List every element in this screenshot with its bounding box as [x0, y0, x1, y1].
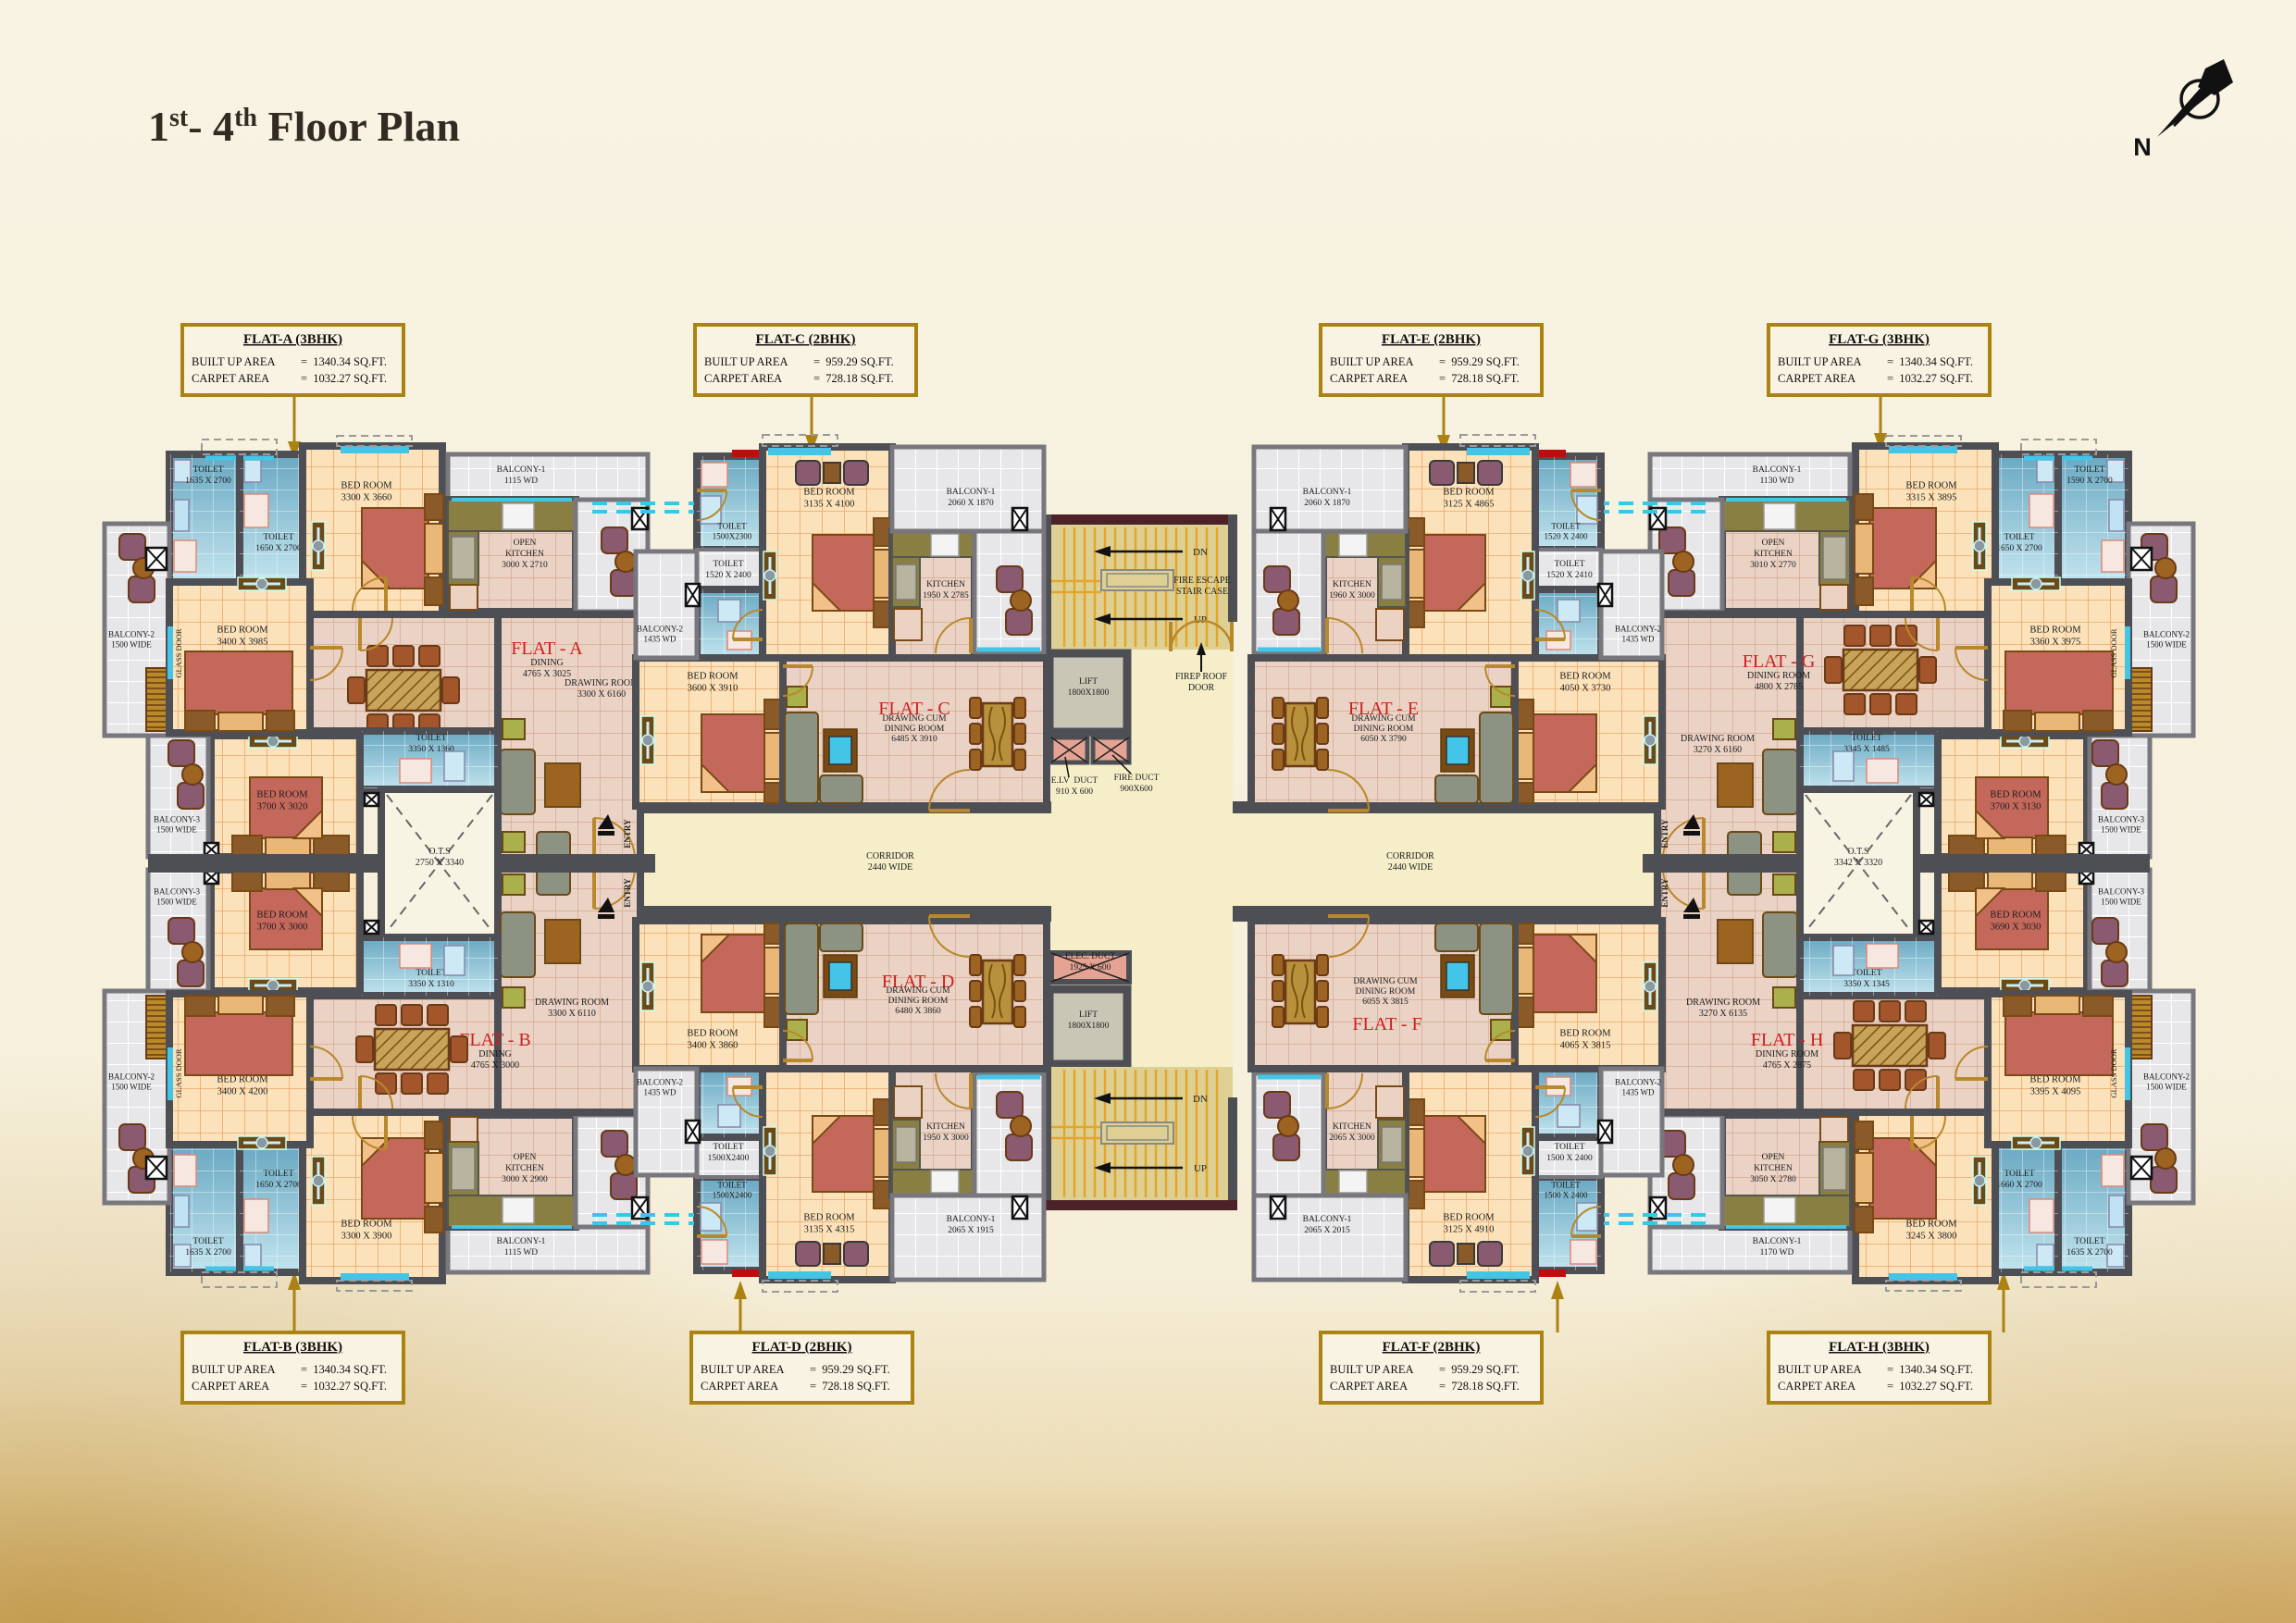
svg-text:ENTRY: ENTRY — [1660, 819, 1669, 849]
svg-text:KITCHEN1950 X 3000: KITCHEN1950 X 3000 — [923, 1122, 969, 1143]
svg-text:TOILET1500X2400: TOILET1500X2400 — [713, 1180, 752, 1199]
svg-text:KITCHEN1950 X 2785: KITCHEN1950 X 2785 — [923, 580, 969, 601]
svg-text:BALCONY-21435 WD: BALCONY-21435 WD — [1615, 1077, 1661, 1096]
svg-text:UP: UP — [1194, 1163, 1207, 1174]
svg-text:GLASS DOOR: GLASS DOOR — [174, 628, 183, 677]
svg-text:BALCONY-21435 WD: BALCONY-21435 WD — [637, 1077, 683, 1096]
svg-text:FLAT-E (2BHK): FLAT-E (2BHK) — [1382, 332, 1481, 347]
svg-text:ELEC. DUCT1925 X 600: ELEC. DUCT1925 X 600 — [1065, 952, 1116, 973]
svg-text:DRAWING CUMDINING ROOM6055 X 3: DRAWING CUMDINING ROOM6055 X 3815 — [1353, 977, 1418, 1007]
svg-text:BALCONY-31500 WIDE: BALCONY-31500 WIDE — [2098, 886, 2145, 906]
svg-text:DRAWING CUMDINING ROOM6050 X 3: DRAWING CUMDINING ROOM6050 X 3790 — [1351, 714, 1416, 744]
svg-text:BALCONY-21500 WIDE: BALCONY-21500 WIDE — [108, 1072, 155, 1091]
svg-text:ENTRY: ENTRY — [623, 819, 632, 849]
svg-text:ENTRY: ENTRY — [623, 878, 632, 908]
svg-text:FLAT - H: FLAT - H — [1751, 1030, 1824, 1050]
svg-text:BALCONY-31500 WIDE: BALCONY-31500 WIDE — [2098, 814, 2145, 834]
svg-text:FIRE ESCAPESTAIR CASE: FIRE ESCAPESTAIR CASE — [1173, 576, 1230, 597]
svg-text:GLASS DOOR: GLASS DOOR — [2109, 1048, 2118, 1097]
svg-text:FLAT-F (2BHK): FLAT-F (2BHK) — [1383, 1340, 1481, 1355]
svg-text:1st- 4th Floor Plan: 1st- 4th Floor Plan — [148, 103, 460, 150]
svg-text:FLAT-D (2BHK): FLAT-D (2BHK) — [752, 1340, 852, 1355]
svg-text:KITCHEN2065 X 3000: KITCHEN2065 X 3000 — [1329, 1122, 1375, 1143]
svg-text:FLAT-B (3BHK): FLAT-B (3BHK) — [243, 1340, 342, 1355]
svg-text:TOILET1500X2300: TOILET1500X2300 — [713, 521, 752, 540]
svg-text:GLASS DOOR: GLASS DOOR — [2109, 628, 2118, 677]
svg-text:DRAWING CUMDINING ROOM6485 X 3: DRAWING CUMDINING ROOM6485 X 3910 — [882, 714, 947, 744]
svg-text:FLAT-H (3BHK): FLAT-H (3BHK) — [1829, 1340, 1930, 1355]
svg-text:CORRIDOR2440 WIDE: CORRIDOR2440 WIDE — [1386, 851, 1434, 873]
svg-text:FLAT-A (3BHK): FLAT-A (3BHK) — [243, 332, 342, 347]
svg-text:BALCONY-21435 WD: BALCONY-21435 WD — [1615, 624, 1661, 643]
svg-text:DN: DN — [1193, 1094, 1208, 1105]
svg-text:N: N — [2133, 133, 2152, 161]
svg-text:KITCHEN1960 X 3000: KITCHEN1960 X 3000 — [1329, 580, 1375, 601]
svg-text:BALCONY-12060 X 1870: BALCONY-12060 X 1870 — [1303, 488, 1352, 508]
svg-text:BALCONY-21435 WD: BALCONY-21435 WD — [637, 624, 683, 643]
svg-text:TOILET1500X2400: TOILET1500X2400 — [708, 1143, 750, 1163]
svg-text:BALCONY-31500 WIDE: BALCONY-31500 WIDE — [154, 886, 201, 906]
svg-text:FLAT - F: FLAT - F — [1352, 1014, 1421, 1035]
svg-text:BALCONY-12065 X 2015: BALCONY-12065 X 2015 — [1303, 1215, 1352, 1235]
svg-text:GLASS DOOR: GLASS DOOR — [174, 1048, 183, 1097]
svg-text:DRAWING CUMDINING ROOM6480 X 3: DRAWING CUMDINING ROOM6480 X 3860 — [886, 986, 950, 1016]
svg-text:CORRIDOR2440 WIDE: CORRIDOR2440 WIDE — [866, 851, 914, 873]
svg-text:BALCONY-21500 WIDE: BALCONY-21500 WIDE — [108, 629, 155, 649]
svg-text:ENTRY: ENTRY — [1660, 878, 1669, 908]
svg-text:FLAT - G: FLAT - G — [1743, 651, 1816, 672]
svg-text:DINING ROOM4800 X 2785: DINING ROOM4800 X 2785 — [1747, 671, 1810, 692]
svg-text:BALCONY-12060 X 1870: BALCONY-12060 X 1870 — [947, 488, 996, 508]
svg-text:DINING ROOM4765 X 2875: DINING ROOM4765 X 2875 — [1756, 1049, 1818, 1071]
svg-text:FLAT-G (3BHK): FLAT-G (3BHK) — [1829, 332, 1930, 347]
svg-text:BALCONY-12065 X 1915: BALCONY-12065 X 1915 — [947, 1215, 996, 1235]
svg-text:FLAT - A: FLAT - A — [511, 638, 583, 659]
svg-text:BALCONY-21500 WIDE: BALCONY-21500 WIDE — [2143, 629, 2190, 649]
svg-text:BALCONY-21500 WIDE: BALCONY-21500 WIDE — [2143, 1072, 2190, 1091]
svg-text:BALCONY-31500 WIDE: BALCONY-31500 WIDE — [154, 814, 201, 834]
svg-text:DN: DN — [1193, 547, 1208, 558]
svg-text:FLAT-C (2BHK): FLAT-C (2BHK) — [756, 332, 856, 347]
svg-text:FLAT - B: FLAT - B — [459, 1030, 530, 1050]
svg-text:FIRE DUCT900X600: FIRE DUCT900X600 — [1114, 774, 1160, 794]
svg-text:E.LV DUCT910 X 600: E.LV DUCT910 X 600 — [1051, 776, 1098, 797]
